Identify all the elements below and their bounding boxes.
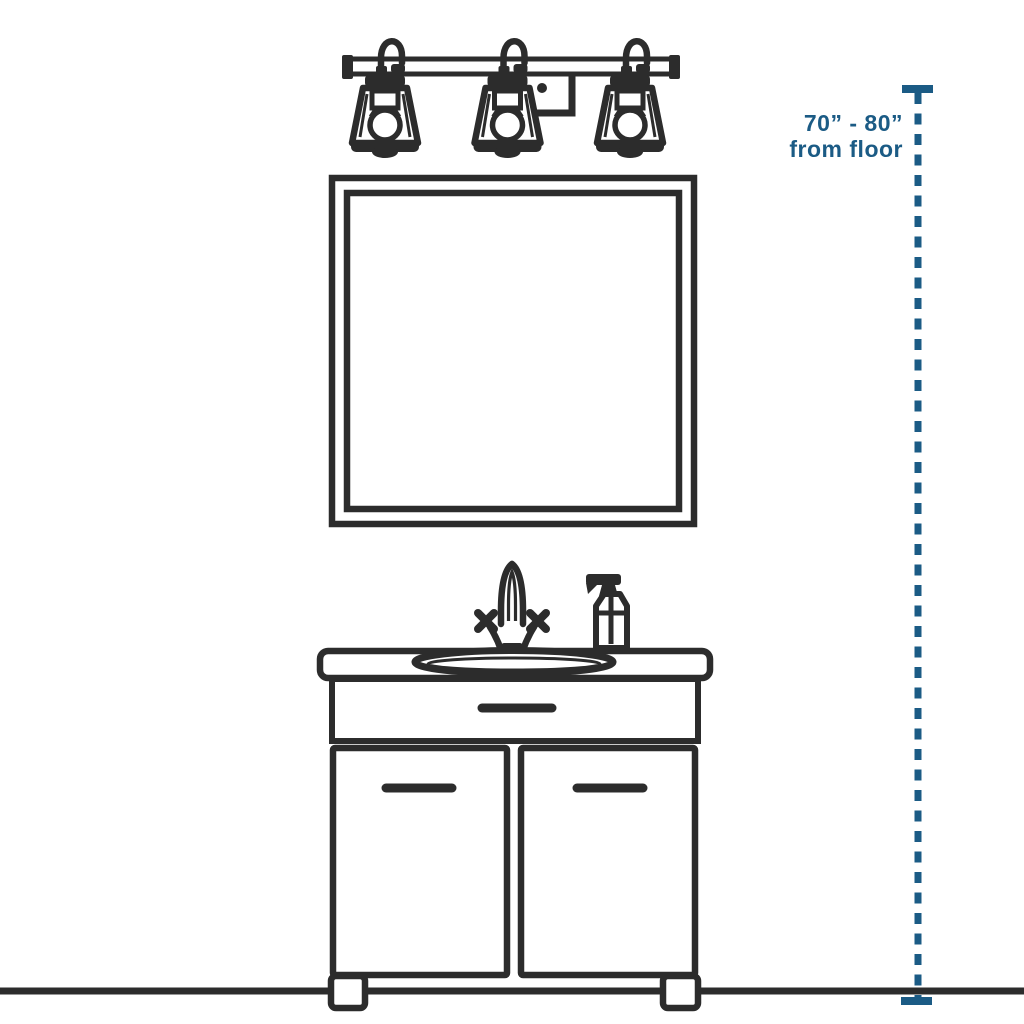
mirror-inner-frame — [347, 193, 679, 509]
left-foot — [331, 976, 365, 1008]
faucet-right-handle — [530, 613, 546, 629]
backplate-screw — [537, 83, 547, 93]
measurement-range-label: 70” - 80” — [804, 110, 903, 136]
faucet-left-handle — [478, 613, 494, 629]
vanity-doors — [333, 748, 695, 975]
fixture-bar-left-cap — [342, 55, 353, 79]
right-foot — [663, 976, 698, 1008]
vanity-top — [320, 651, 710, 679]
faucet-base — [501, 643, 523, 654]
mirror-icon — [332, 178, 694, 524]
right-door — [521, 748, 695, 975]
faucet-icon — [478, 564, 546, 654]
vanity-height-diagram: 70” - 80” from floor — [0, 0, 1024, 1024]
vanity-drawer — [332, 679, 698, 741]
height-measurement: 70” - 80” from floor — [789, 89, 933, 1001]
left-door — [333, 748, 507, 975]
diagram-canvas: 70” - 80” from floor — [0, 0, 1024, 1024]
line-artwork — [0, 41, 1024, 1008]
vanity-light-fixture-icon — [342, 41, 680, 158]
measurement-caption-label: from floor — [789, 136, 903, 162]
fixture-bar-right-cap — [669, 55, 680, 79]
mirror-outer-frame — [332, 178, 694, 524]
soap-pump-nozzle — [586, 583, 599, 594]
soap-dispenser-icon — [586, 574, 627, 648]
